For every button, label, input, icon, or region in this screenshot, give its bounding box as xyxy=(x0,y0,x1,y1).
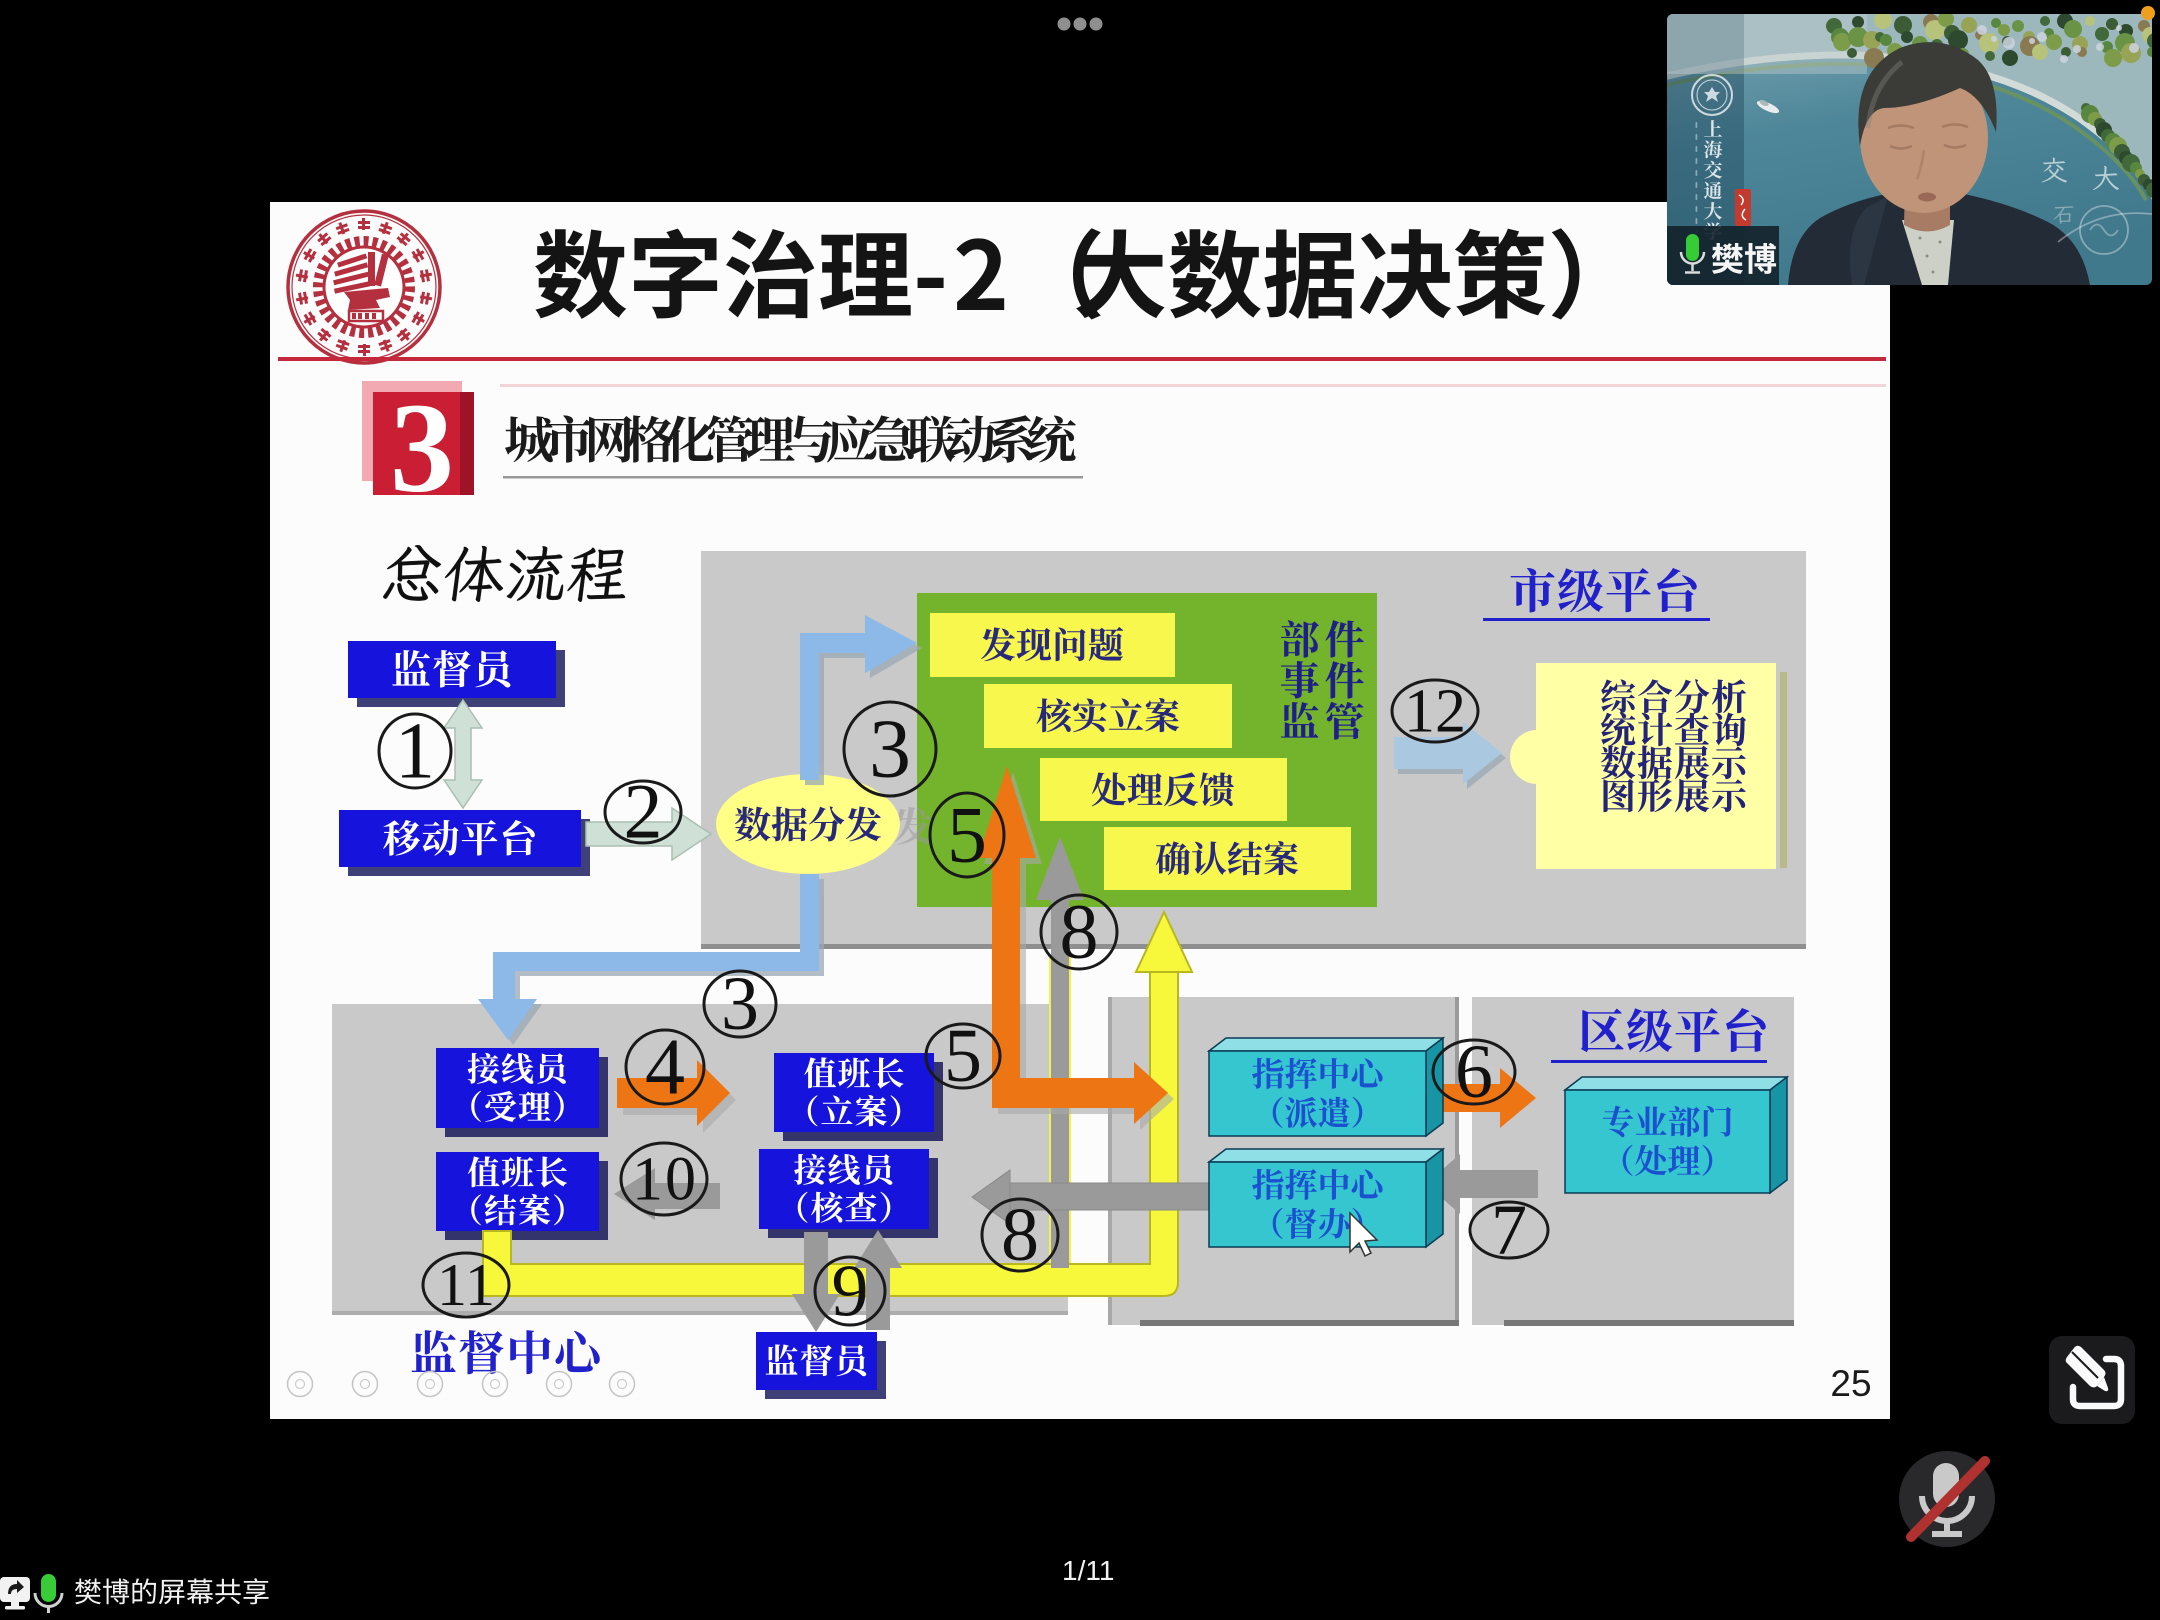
svg-text:2: 2 xyxy=(624,768,663,855)
svg-text:7: 7 xyxy=(1491,1190,1527,1270)
svg-text:3: 3 xyxy=(869,703,911,796)
svg-text:11: 11 xyxy=(437,1252,495,1318)
svg-text:6: 6 xyxy=(1455,1030,1493,1114)
svg-text:12: 12 xyxy=(1404,677,1466,745)
svg-text:5: 5 xyxy=(947,791,987,879)
svg-text:5: 5 xyxy=(944,1014,982,1098)
svg-text:3: 3 xyxy=(721,962,759,1046)
svg-text:25: 25 xyxy=(1830,1363,1871,1404)
svg-text:4: 4 xyxy=(645,1023,685,1111)
svg-text:9: 9 xyxy=(832,1250,869,1332)
svg-text:3: 3 xyxy=(390,377,454,519)
svg-text:8: 8 xyxy=(1001,1193,1039,1277)
svg-text:1: 1 xyxy=(395,707,435,795)
svg-text:8: 8 xyxy=(1060,888,1099,975)
svg-text:1/11: 1/11 xyxy=(1062,1555,1114,1586)
